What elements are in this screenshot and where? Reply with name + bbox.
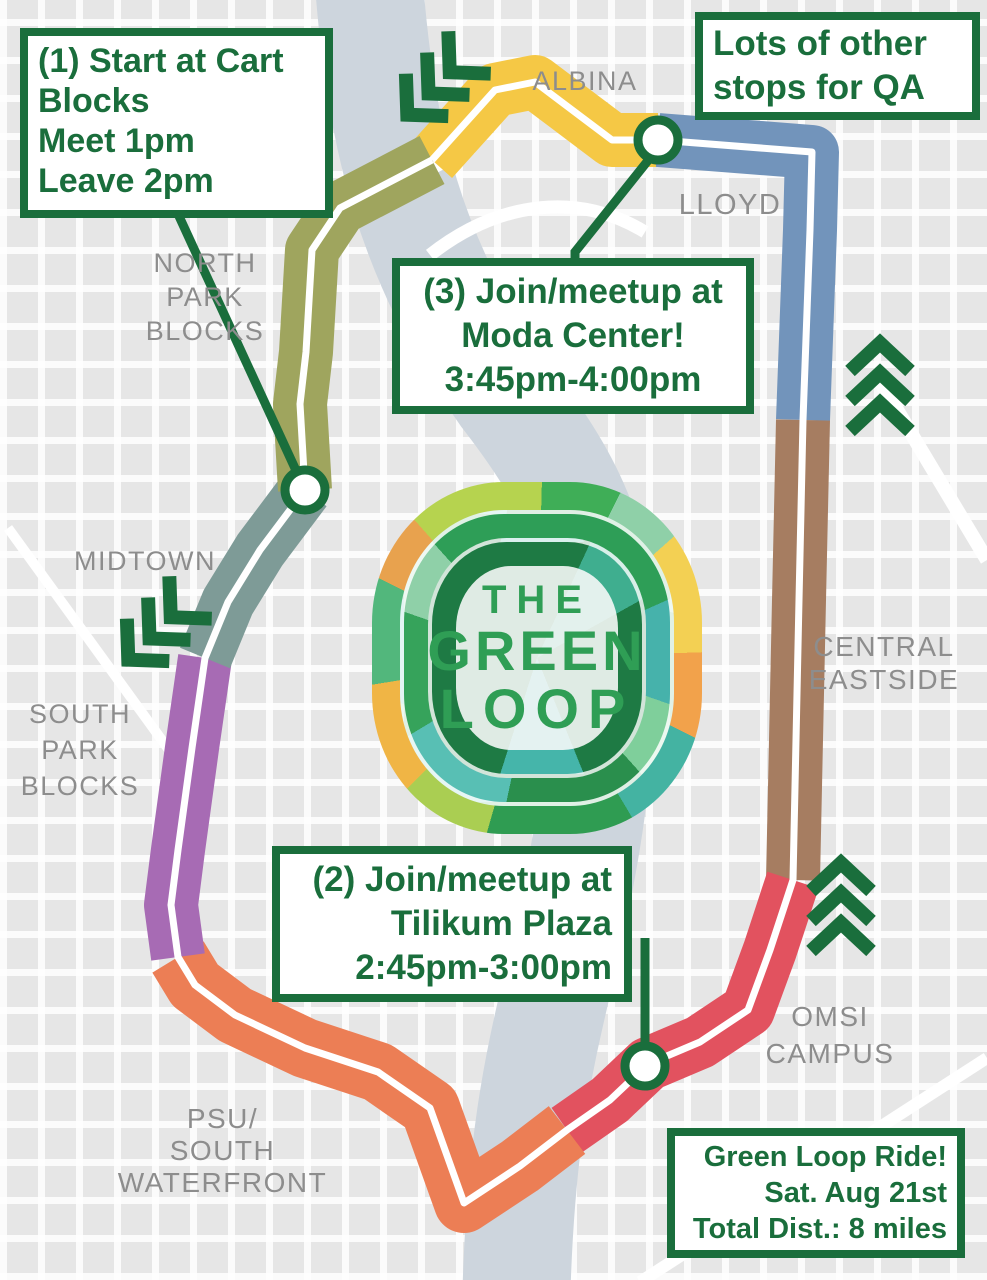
note-box-moda-center: (3) Join/meetup at Moda Center! 3:45pm-4… [392, 258, 754, 414]
region-label-south-park-blocks: SOUTH PARK BLOCKS [0, 696, 160, 804]
stop-marker-cart-blocks [285, 470, 325, 510]
green-loop-map: THE GREEN LOOP ALBINA LLOYD NORTH PARK B… [0, 0, 987, 1280]
note-box-ride-info: Green Loop Ride! Sat. Aug 21st Total Dis… [667, 1128, 965, 1258]
logo-word-loop: LOOP [440, 680, 635, 738]
stop-marker-moda-center [638, 120, 678, 160]
note-line: (3) Join/meetup at [408, 270, 738, 314]
note-line: Leave 2pm [38, 161, 315, 201]
note-line: (1) Start at Cart Blocks [38, 41, 315, 121]
region-label-midtown: MIDTOWN [45, 544, 245, 578]
region-label-omsi-campus: OMSI CAMPUS [730, 998, 930, 1072]
note-line: Sat. Aug 21st [685, 1175, 947, 1211]
stop-marker-tilikum-plaza [625, 1046, 665, 1086]
green-loop-logo: THE GREEN LOOP [372, 482, 702, 834]
note-line: Lots of other stops for QA [713, 22, 962, 110]
note-box-other-stops-qa: Lots of other stops for QA [695, 12, 980, 120]
logo-word-green: GREEN [427, 622, 646, 680]
note-line: 2:45pm-3:00pm [292, 946, 612, 990]
note-line: Green Loop Ride! [685, 1139, 947, 1175]
note-line: Meet 1pm [38, 121, 315, 161]
diagonal-street-northeast [878, 378, 987, 560]
region-label-albina: ALBINA [500, 64, 670, 98]
region-label-central-eastside: CENTRAL EASTSIDE [784, 630, 984, 696]
note-line: 3:45pm-4:00pm [408, 358, 738, 402]
region-label-lloyd: LLOYD [650, 188, 810, 222]
note-line: Moda Center! [408, 314, 738, 358]
region-label-north-park-blocks: NORTH PARK BLOCKS [105, 246, 305, 348]
note-line: Total Dist.: 8 miles [685, 1211, 947, 1247]
note-box-tilikum-plaza: (2) Join/meetup at Tilikum Plaza 2:45pm-… [272, 846, 632, 1002]
logo-word-the: THE [482, 578, 592, 622]
note-line: Tilikum Plaza [292, 902, 612, 946]
note-line: (2) Join/meetup at [292, 858, 612, 902]
logo-wordmark: THE GREEN LOOP [372, 482, 702, 834]
region-label-psu-south-waterfront: PSU/ SOUTH WATERFRONT [65, 1103, 380, 1199]
note-box-start-cart-blocks: (1) Start at Cart Blocks Meet 1pm Leave … [20, 28, 333, 218]
chevrons-eastside-north-lower-icon [811, 863, 871, 951]
